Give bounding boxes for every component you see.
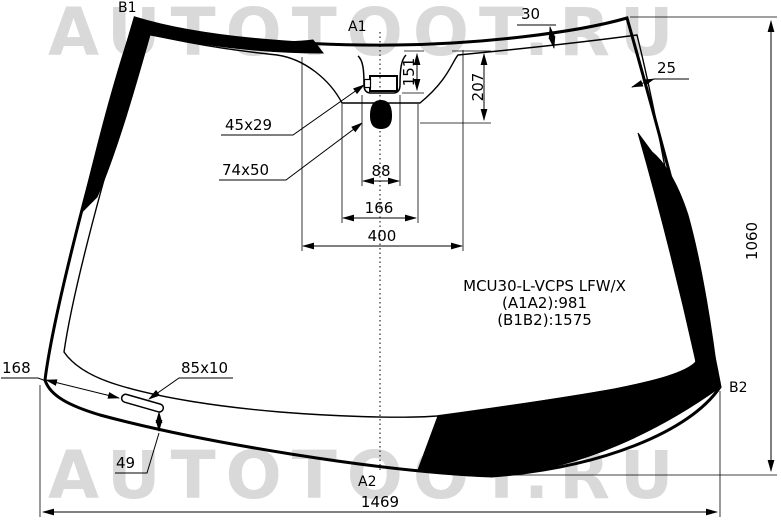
a1a2-distance: (A1A2):981	[422, 295, 667, 312]
dim-bottom-width: 1469	[350, 494, 410, 510]
dim-sensor-depth: 151	[401, 50, 417, 94]
part-info-block: MCU30-L-VCPS LFW/X (A1A2):981 (B1B2):157…	[422, 278, 667, 329]
point-label-a2: A2	[358, 474, 376, 490]
point-label-a1: A1	[348, 19, 366, 35]
b1b2-distance: (B1B2):1575	[422, 312, 667, 329]
dim-slot-offset: 168	[2, 360, 31, 376]
dim-cover-span: 166	[349, 200, 409, 216]
point-label-b1: B1	[118, 0, 137, 16]
dim-top-band-width: 30	[521, 6, 540, 22]
dim-cover-total-span: 400	[352, 228, 412, 244]
drawing-linework	[0, 0, 781, 521]
black-band-top-left	[81, 18, 323, 213]
dim-mirror-depth: 207	[470, 65, 486, 109]
windshield-drawing: AUTOTOOT.RU AUTOTOOT.RU	[0, 0, 781, 521]
dim-sensor-window-size: 45x29	[225, 117, 272, 133]
wiper-slot	[121, 393, 165, 413]
sensor-window-notch	[365, 80, 371, 88]
sensor-window	[370, 76, 397, 91]
point-label-b2: B2	[729, 380, 748, 396]
dim-sensor-window-span: 88	[361, 163, 401, 179]
dim-slot-to-edge: 49	[116, 455, 135, 471]
dim-side-band-width: 25	[657, 60, 676, 76]
dim-slot-size: 85x10	[181, 360, 228, 376]
dimension-lines	[43, 21, 771, 512]
dim-glass-height: 1060	[744, 211, 760, 271]
mirror-button	[370, 100, 392, 129]
part-number: MCU30-L-VCPS LFW/X	[422, 278, 667, 295]
dim-mirror-button-size: 74x50	[222, 162, 269, 178]
